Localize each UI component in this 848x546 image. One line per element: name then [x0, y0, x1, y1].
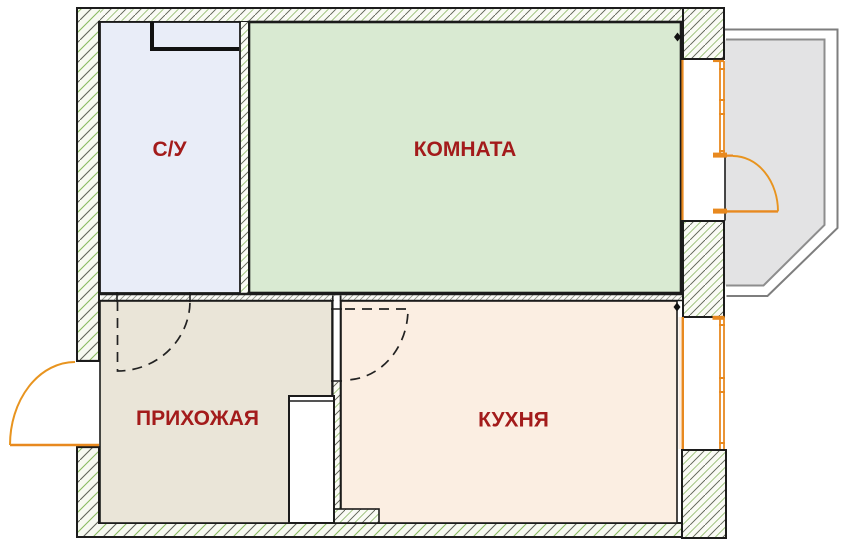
svg-text:КУХНЯ: КУХНЯ — [478, 409, 549, 432]
svg-text:С/У: С/У — [152, 138, 187, 161]
svg-text:КОМНАТА: КОМНАТА — [414, 138, 517, 161]
svg-text:ПРИХОЖАЯ: ПРИХОЖАЯ — [136, 407, 259, 430]
